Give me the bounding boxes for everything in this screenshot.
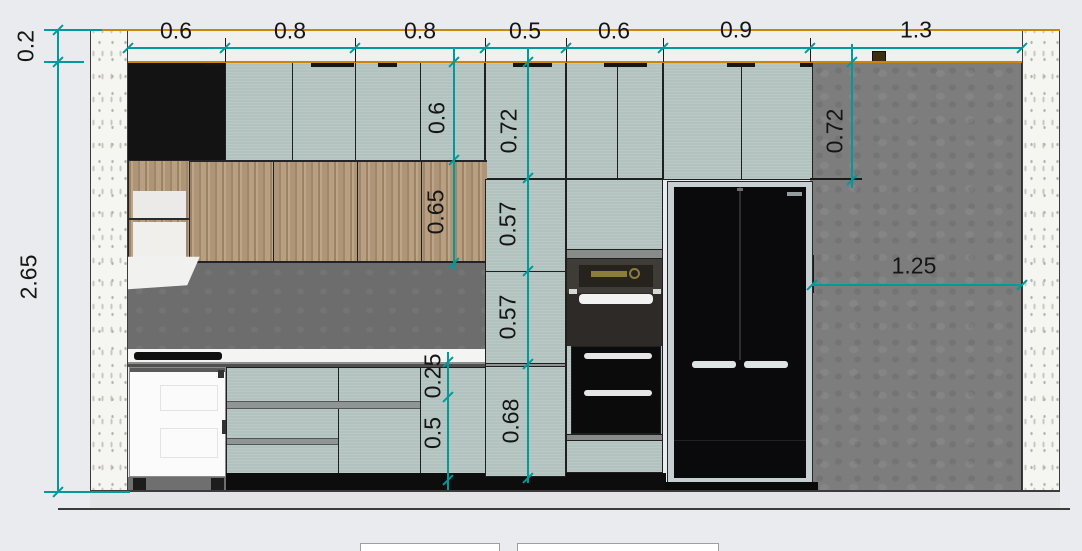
upper-cabinet-oven-column-top[interactable] — [566, 62, 663, 179]
floor-band — [90, 492, 1060, 508]
dimension-label: 0.68 — [500, 399, 523, 444]
dimension-line — [851, 44, 853, 188]
kitchen-elevation-drawing: 0.60.80.80.50.60.91.30.22.650.60.650.720… — [0, 0, 1082, 551]
door-split — [741, 63, 742, 179]
dimension-line — [527, 48, 529, 483]
door-handle — [727, 63, 755, 67]
door-split — [420, 63, 421, 160]
dimension-label: 0.25 — [422, 354, 445, 399]
upper-cabinet-over-fridge[interactable] — [663, 62, 813, 180]
floor-line — [90, 490, 1060, 492]
door-split — [292, 63, 293, 160]
shelf-divider — [129, 218, 191, 220]
dimension-line — [447, 352, 449, 490]
unit-split — [338, 368, 339, 476]
extension-line — [225, 38, 226, 62]
dishwasher-hinge — [218, 370, 224, 378]
oven-handle — [579, 294, 653, 304]
dimension-label: 0.72 — [824, 109, 847, 154]
oven-hinge — [569, 289, 577, 294]
door-handle — [604, 63, 647, 67]
dimension-label: 0.5 — [509, 20, 541, 43]
refrigerator[interactable] — [667, 181, 813, 484]
right-wall-section — [1022, 30, 1060, 509]
upper-cabinet-black[interactable] — [128, 62, 225, 161]
extension-line — [485, 38, 486, 62]
dimension-label: 0.65 — [425, 190, 448, 235]
dimension-label: 2.65 — [18, 255, 41, 300]
dimension-label: 0.2 — [15, 30, 38, 62]
drawer-handle-band — [227, 401, 420, 409]
dimension-line — [57, 30, 59, 492]
dimension-label: 0.9 — [720, 19, 752, 42]
extension-line — [663, 38, 664, 62]
dimension-label: 1.3 — [900, 19, 932, 42]
shelf-interior — [133, 222, 186, 258]
dimension-label: 0.57 — [497, 295, 520, 340]
appliance-foot — [211, 478, 224, 490]
cooktop[interactable] — [134, 352, 222, 360]
fridge-handle — [744, 361, 788, 368]
oven-hinge — [653, 289, 661, 294]
oven-column[interactable] — [566, 179, 663, 473]
oven-display-text — [591, 271, 627, 277]
door-split — [617, 63, 618, 178]
dimension-line — [128, 47, 1022, 49]
appliance-foot — [133, 478, 146, 490]
dimension-label: 0.5 — [422, 417, 445, 449]
dishwasher-panel-line — [160, 428, 218, 458]
fridge-door-split — [739, 187, 741, 360]
dimension-label: 0.57 — [497, 202, 520, 247]
warming-drawers[interactable] — [571, 346, 661, 434]
dishwasher[interactable] — [129, 367, 226, 477]
left-wall-section — [90, 30, 128, 509]
dimension-label: 0.6 — [426, 102, 449, 134]
door-handle — [513, 63, 552, 67]
dimension-label: 0.72 — [498, 109, 521, 154]
door-handle — [800, 63, 813, 67]
cabinet-top-line — [128, 61, 1022, 63]
oven[interactable] — [567, 259, 662, 346]
freezer-line — [674, 440, 806, 441]
dimension-label: 0.6 — [598, 20, 630, 43]
door-split — [355, 63, 356, 160]
dimension-line — [44, 29, 102, 31]
dimension-line — [44, 491, 130, 493]
extension-line — [355, 38, 356, 62]
drawer-handle-band — [227, 438, 338, 445]
bottom-button-left[interactable] — [360, 543, 500, 551]
open-shelf-unit[interactable] — [128, 160, 190, 263]
oven-knob — [629, 268, 640, 279]
dishwasher-panel-line — [160, 385, 218, 411]
fridge-logo — [787, 192, 802, 196]
shelf-interior — [133, 191, 186, 218]
dimension-label: 0.8 — [404, 20, 436, 43]
drawer-handle — [584, 390, 652, 396]
slab-line — [58, 508, 1070, 510]
recess-strip — [567, 434, 662, 441]
ceiling-bulkhead — [128, 30, 1022, 62]
bottom-button-right[interactable] — [517, 543, 719, 551]
recess-strip — [567, 249, 662, 259]
dimension-line — [44, 61, 84, 63]
extension-line — [566, 38, 567, 62]
drawer-handle — [584, 353, 652, 359]
door-split — [357, 162, 358, 261]
fridge-sensor — [737, 188, 743, 191]
extension-line — [810, 38, 811, 62]
extension-line — [813, 255, 814, 293]
dimension-line — [812, 284, 1022, 286]
dimension-label: 1.25 — [892, 255, 937, 278]
dimension-label: 0.6 — [160, 20, 192, 43]
door-handle — [311, 63, 354, 67]
door-handle — [378, 63, 397, 67]
dimension-label: 0.8 — [274, 20, 306, 43]
door-split — [273, 162, 274, 261]
fridge-handle — [692, 361, 736, 368]
dishwasher-top-trim — [130, 368, 225, 372]
